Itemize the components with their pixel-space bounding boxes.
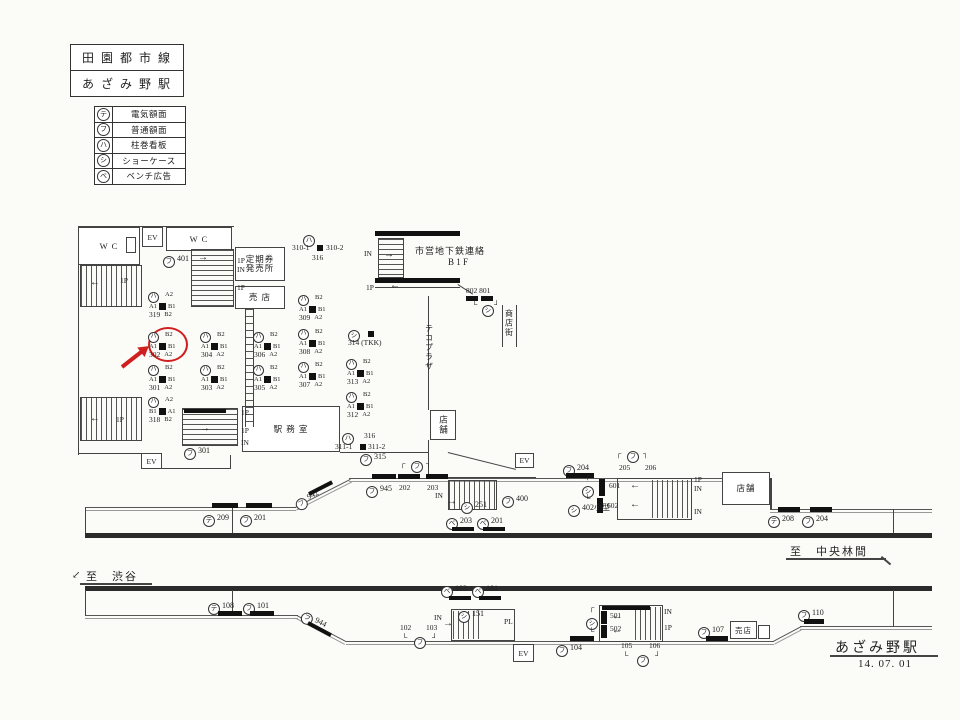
ad-bar bbox=[218, 611, 242, 616]
ad-bar bbox=[308, 480, 333, 495]
diagram-text: 310-1 bbox=[292, 244, 310, 253]
diagram-text: 311-2 bbox=[368, 443, 385, 452]
pillar-icon bbox=[211, 343, 218, 350]
arrow-icon: → bbox=[198, 253, 208, 263]
diagram-text: 314 (TKK) bbox=[348, 339, 382, 348]
diagram-text: 1P bbox=[237, 284, 245, 293]
pillar-ad-312: ハB2A1B1312A2 bbox=[346, 391, 390, 418]
ad-marker-208: テ 208 bbox=[768, 514, 794, 528]
ad-marker-151: シ 151 bbox=[458, 609, 484, 623]
pillar-ad-319: ハA2A1B1319B2 bbox=[148, 291, 192, 318]
ad-bar bbox=[599, 479, 605, 496]
ad-type-icon: シ bbox=[458, 611, 470, 623]
diagram-text: 103 bbox=[426, 624, 437, 633]
diagram-text: 316 bbox=[364, 432, 375, 441]
pillar-ad-302: ハB2A1B1302A2 bbox=[148, 331, 192, 358]
diagram-text: 102 bbox=[400, 624, 411, 633]
ad-bar bbox=[570, 636, 594, 641]
ad-bar bbox=[452, 527, 474, 531]
ad-type-icon: フ bbox=[240, 515, 252, 527]
ad-bar bbox=[398, 474, 420, 479]
ad-type-icon: フ bbox=[802, 516, 814, 528]
pillar-icon bbox=[264, 376, 271, 383]
ad-marker-フ: フ bbox=[627, 449, 639, 463]
ad-type-icon: シ bbox=[461, 502, 473, 514]
diagram-text: 206 bbox=[645, 464, 656, 473]
diagram-text: ┘ bbox=[655, 652, 660, 661]
arrow-icon: ↙ bbox=[72, 571, 80, 581]
diagram-text: 1P bbox=[241, 427, 249, 436]
diagram-text: IN bbox=[694, 508, 702, 517]
ad-type-icon: フ bbox=[414, 637, 426, 649]
ad-type-icon: フ bbox=[360, 454, 372, 466]
ad-marker-フ: フ bbox=[637, 653, 649, 667]
arrow-icon: ← bbox=[612, 612, 622, 622]
diagram-text: IN bbox=[434, 614, 442, 623]
diagram-text: 1P bbox=[366, 284, 374, 293]
pillar-ad-304: ハB2A1B1304A2 bbox=[200, 331, 244, 358]
ad-type-icon: フ bbox=[627, 451, 639, 463]
diagram-text: └ bbox=[623, 652, 628, 661]
ad-marker-フ: フ bbox=[414, 635, 426, 649]
pillar-ad-307: ハB2A1B1307A2 bbox=[298, 361, 342, 388]
diagram-text: IN bbox=[241, 439, 249, 448]
ad-bar bbox=[246, 503, 272, 508]
diagram-text: ┐ bbox=[643, 450, 648, 459]
diagram-text: ┌ bbox=[400, 460, 405, 469]
diagram-text: IN bbox=[694, 485, 702, 494]
pillar-icon bbox=[309, 340, 316, 347]
diagram-text: ┌ bbox=[589, 604, 594, 613]
diagram-text: 316 bbox=[312, 254, 323, 263]
ad-type-icon: シ bbox=[482, 305, 494, 317]
ad-type-icon: フ bbox=[502, 496, 514, 508]
diagram-text: └ bbox=[589, 628, 594, 637]
pillar-ad-301: ハB2A1B1301A2 bbox=[148, 364, 192, 391]
ad-marker-315: フ 315 bbox=[360, 452, 386, 466]
ad-bar bbox=[804, 619, 824, 624]
pillar-ad-305: ハB2A1B1305A2 bbox=[253, 364, 297, 391]
pillar-ad-306: ハB2A1B1306A2 bbox=[253, 331, 297, 358]
arrow-icon: ← bbox=[390, 281, 400, 291]
ad-marker-フ: フ bbox=[411, 459, 423, 473]
ad-bar bbox=[601, 611, 607, 624]
pillar-icon bbox=[159, 343, 166, 350]
ad-type-icon: フ bbox=[366, 486, 378, 498]
ad-marker-402小型: シ 402小型 bbox=[568, 503, 610, 517]
diagram-text: 1P bbox=[120, 277, 128, 286]
diagram-text: IN bbox=[364, 250, 372, 259]
ad-bar bbox=[372, 474, 396, 479]
arrow-icon: ← bbox=[612, 626, 622, 636]
diagram-text: IN bbox=[237, 266, 245, 275]
ad-marker-204: フ 204 bbox=[802, 514, 828, 528]
arrow-icon: → bbox=[443, 619, 453, 629]
ad-bar bbox=[368, 331, 374, 337]
ad-type-icon: フ bbox=[411, 461, 423, 473]
ad-marker-104: フ 104 bbox=[556, 643, 582, 657]
ad-type-icon: フ bbox=[637, 655, 649, 667]
diagram-text: IN bbox=[664, 608, 672, 617]
arrow-icon: → bbox=[200, 424, 210, 434]
ad-bar bbox=[706, 636, 728, 641]
ad-bar bbox=[360, 444, 366, 450]
pillar-icon bbox=[309, 373, 316, 380]
ad-marker-シ: シ bbox=[482, 303, 494, 317]
diagram-text: 311-1 bbox=[335, 443, 352, 452]
diagram-text: 1P bbox=[241, 409, 249, 418]
station-diagram: 田 園 都 市 線 あ ざ み 野 駅 テ電気額面フ普通額面ハ柱巻看板シショーケ… bbox=[0, 0, 960, 720]
diagram-text: 202 bbox=[399, 484, 410, 493]
arrow-icon: ← bbox=[630, 481, 640, 491]
ad-marker-400: フ 400 bbox=[502, 494, 528, 508]
arrow-icon: ← bbox=[630, 500, 640, 510]
diagram-text: ┌ bbox=[585, 472, 590, 481]
diagram-text: 1P bbox=[664, 624, 672, 633]
pillar-ad-318: ハA2B1A1318B2 bbox=[148, 396, 192, 423]
ad-bar bbox=[212, 503, 238, 508]
ad-type-icon: シ bbox=[568, 505, 580, 517]
diagram-text: └ bbox=[402, 634, 407, 643]
diagram-text: IN bbox=[435, 492, 443, 501]
ad-marker-209: テ 209 bbox=[203, 513, 229, 527]
pillar-icon bbox=[357, 370, 364, 377]
ad-bar bbox=[250, 611, 274, 616]
diagram-text: PL bbox=[504, 618, 513, 627]
arrow-icon: → bbox=[384, 250, 394, 260]
diagram-text: 105 bbox=[621, 642, 632, 651]
pillar-ad-313: ハB2A1B1313A2 bbox=[346, 358, 390, 385]
ad-bar bbox=[479, 596, 501, 600]
ad-bar bbox=[601, 625, 607, 638]
ad-type-icon: フ bbox=[163, 256, 175, 268]
arrow-icon: ← bbox=[90, 278, 100, 288]
pillar-icon bbox=[264, 343, 271, 350]
ad-marker-301: フ 301 bbox=[184, 446, 210, 460]
ad-bar bbox=[426, 474, 448, 479]
diagram-text: ┐ bbox=[426, 460, 431, 469]
pillar-icon bbox=[159, 376, 166, 383]
pillar-ad-303: ハB2A1B1303A2 bbox=[200, 364, 244, 391]
ad-marker-945: フ 945 bbox=[366, 484, 392, 498]
ad-marker-201: フ 201 bbox=[240, 513, 266, 527]
ad-bar bbox=[810, 507, 832, 512]
pillar-icon bbox=[309, 306, 316, 313]
diagram-text: 802 801 bbox=[466, 287, 490, 296]
diagram-text: 601 bbox=[609, 482, 620, 491]
ad-bar bbox=[778, 507, 800, 512]
diagram-text: ┘ bbox=[494, 301, 499, 310]
diagram-text: 106 bbox=[649, 642, 660, 651]
ad-bar bbox=[449, 596, 471, 600]
diagram-text: └ bbox=[472, 301, 477, 310]
pillar-icon bbox=[357, 403, 364, 410]
ad-bar bbox=[483, 527, 505, 531]
arrow-icon: ← bbox=[90, 414, 100, 424]
ad-type-icon: フ bbox=[556, 645, 568, 657]
ad-markers-layer: フ 401ハA2A1B1319B2ハB2A1B1302A2ハB2A1B1301A… bbox=[0, 0, 960, 720]
ad-bar bbox=[317, 245, 323, 251]
ad-marker-251: シ 251 bbox=[461, 500, 487, 514]
ad-marker-401: フ 401 bbox=[163, 254, 189, 268]
ad-bar bbox=[481, 296, 493, 301]
ad-type-icon: テ bbox=[768, 516, 780, 528]
diagram-text: 310-2 bbox=[326, 244, 344, 253]
ad-type-icon: テ bbox=[203, 515, 215, 527]
diagram-text: ┌ bbox=[616, 450, 621, 459]
diagram-text: 205 bbox=[619, 464, 630, 473]
arrow-icon: → bbox=[447, 497, 457, 507]
pillar-ad-308: ハB2A1B1308A2 bbox=[298, 328, 342, 355]
pillar-ad-309: ハB2A1B1309A2 bbox=[298, 294, 342, 321]
ad-type-icon: フ bbox=[184, 448, 196, 460]
pillar-icon bbox=[159, 303, 166, 310]
pillar-icon bbox=[211, 376, 218, 383]
diagram-text: 1P bbox=[116, 416, 124, 425]
diagram-text: ┘ bbox=[432, 634, 437, 643]
